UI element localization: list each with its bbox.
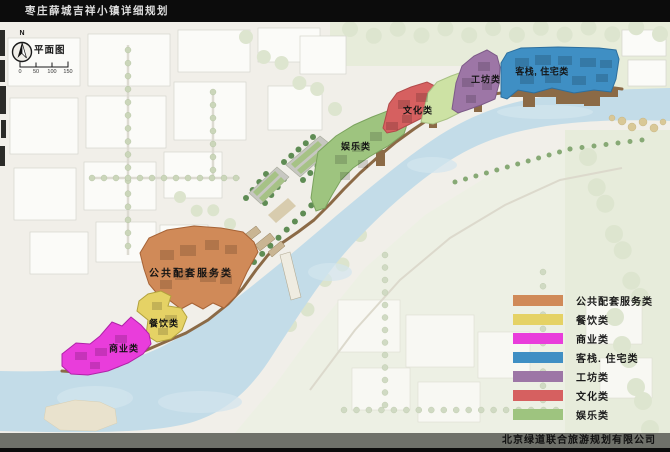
- tree-icon: [354, 407, 360, 413]
- scale-tick-0: 0: [18, 69, 21, 75]
- tree-icon: [382, 377, 388, 383]
- tree-icon: [491, 407, 497, 413]
- scale-tick-150: 150: [63, 69, 72, 75]
- tree-icon: [485, 20, 501, 36]
- tree-icon: [382, 302, 388, 308]
- legend-item: 公共配套服务类: [513, 295, 653, 306]
- tree-icon: [640, 138, 645, 143]
- page-title: 枣庄薛城吉祥小镇详细规划: [25, 0, 169, 22]
- tree-icon: [547, 153, 552, 158]
- legend-label: 工坊类: [576, 369, 609, 384]
- tree-icon: [125, 217, 131, 223]
- scale-tick-100: 100: [47, 69, 56, 75]
- tree-icon: [300, 211, 306, 217]
- tree-icon: [125, 139, 131, 145]
- legend-swatch-workshop: [513, 371, 563, 382]
- tree-icon: [276, 235, 282, 241]
- tree-icon: [441, 407, 447, 413]
- tree-icon: [526, 159, 531, 164]
- tree-icon: [296, 147, 302, 153]
- tree-icon: [382, 277, 388, 283]
- zone-label-culture: 文化类: [403, 104, 433, 117]
- tree-icon: [125, 243, 131, 249]
- tree-icon: [221, 175, 227, 181]
- tree-icon: [125, 204, 131, 210]
- tree-icon: [533, 20, 549, 36]
- tree-icon: [89, 175, 95, 181]
- legend-label: 娱乐类: [576, 407, 609, 422]
- legend: 公共配套服务类 餐饮类 商业类 客栈. 住宅类 工坊类 文化类 娱乐类: [513, 295, 653, 428]
- tree-icon: [125, 86, 131, 92]
- title-bar: 枣庄薛城吉祥小镇详细规划: [0, 0, 670, 22]
- tree-icon: [292, 219, 298, 225]
- tree-icon: [414, 28, 430, 44]
- tree-icon: [382, 365, 388, 371]
- tree-icon: [125, 165, 131, 171]
- tree-icon: [281, 159, 287, 165]
- tree-icon: [310, 134, 316, 140]
- legend-item: 娱乐类: [513, 409, 653, 420]
- legend-label: 餐饮类: [576, 312, 609, 327]
- tree-icon: [461, 27, 477, 43]
- tree-icon: [224, 218, 236, 230]
- legend-item: 商业类: [513, 333, 653, 344]
- tree-icon: [210, 89, 216, 95]
- tree-icon: [540, 269, 546, 275]
- tree-icon: [416, 407, 422, 413]
- tree-icon: [509, 27, 525, 43]
- tree-icon: [233, 175, 239, 181]
- tree-icon: [604, 26, 620, 42]
- legend-swatch-commercial: [513, 333, 563, 344]
- tree-icon: [616, 141, 621, 146]
- plan-view-label: 平面图: [34, 42, 66, 56]
- tree-icon: [652, 26, 668, 42]
- tree-icon: [466, 407, 472, 413]
- tree-icon: [382, 265, 388, 271]
- tree-icon: [292, 76, 306, 90]
- tree-icon: [614, 241, 632, 259]
- zone-label-catering: 餐饮类: [149, 317, 179, 330]
- tree-icon: [557, 150, 562, 155]
- tree-icon: [173, 175, 179, 181]
- tree-icon: [288, 153, 294, 159]
- legend-label: 商业类: [576, 331, 609, 346]
- tree-icon: [473, 174, 478, 179]
- tree-icon: [210, 167, 216, 173]
- tree-icon: [391, 407, 397, 413]
- tree-icon: [113, 175, 119, 181]
- tree-icon: [382, 290, 388, 296]
- tree-icon: [210, 141, 216, 147]
- tree-icon: [382, 352, 388, 358]
- tree-icon: [604, 142, 609, 147]
- scale-tick-50: 50: [33, 69, 39, 75]
- tree-icon: [125, 99, 131, 105]
- footer-black-strip: [0, 448, 670, 452]
- legend-swatch-culture: [513, 390, 563, 401]
- tree-icon: [125, 47, 131, 53]
- tree-icon: [382, 340, 388, 346]
- tree-icon: [403, 407, 409, 413]
- tree-icon: [453, 407, 459, 413]
- tree-icon: [149, 175, 155, 181]
- footer-bar: 北京绿道联合旅游规划有限公司: [0, 433, 670, 448]
- tree-icon: [428, 407, 434, 413]
- legend-swatch-public-service: [513, 295, 563, 306]
- tree-icon: [378, 407, 384, 413]
- tree-icon: [382, 252, 388, 258]
- tree-icon: [210, 115, 216, 121]
- tree-icon: [503, 407, 509, 413]
- tree-icon: [592, 144, 597, 149]
- tree-icon: [300, 177, 306, 183]
- tree-icon: [209, 175, 215, 181]
- north-arrow-icon: [13, 43, 32, 62]
- legend-item: 餐饮类: [513, 314, 653, 325]
- tree-icon: [494, 168, 499, 173]
- tree-icon: [628, 139, 633, 144]
- tree-icon: [275, 56, 289, 70]
- tree-icon: [125, 60, 131, 66]
- tree-icon: [342, 21, 358, 37]
- tree-icon: [307, 170, 313, 176]
- tree-icon: [366, 407, 372, 413]
- tree-icon: [328, 102, 342, 116]
- tree-icon: [484, 171, 489, 176]
- tree-icon: [197, 175, 203, 181]
- tree-icon: [125, 125, 131, 131]
- legend-swatch-catering: [513, 314, 563, 325]
- tree-icon: [210, 154, 216, 160]
- tree-icon: [505, 165, 510, 170]
- planning-map-page: 枣庄薛城吉祥小镇详细规划 N 平面图 0 50 100 150 公共配套服务类 …: [0, 0, 670, 452]
- tree-icon: [453, 180, 458, 185]
- tree-icon: [588, 178, 606, 196]
- legend-label: 公共配套服务类: [576, 293, 653, 308]
- tree-icon: [536, 156, 541, 161]
- zone-label-entertainment: 娱乐类: [341, 140, 371, 153]
- company-name: 北京绿道联合旅游规划有限公司: [502, 433, 656, 448]
- legend-item: 文化类: [513, 390, 653, 401]
- tree-icon: [210, 128, 216, 134]
- tree-icon: [207, 204, 219, 216]
- legend-item: 客栈. 住宅类: [513, 352, 653, 363]
- legend-swatch-inn-residential: [513, 352, 563, 363]
- tree-icon: [622, 272, 640, 290]
- tree-icon: [125, 175, 131, 181]
- tree-icon: [257, 50, 271, 64]
- tree-icon: [568, 147, 573, 152]
- tree-icon: [239, 30, 253, 44]
- tree-icon: [478, 407, 484, 413]
- tree-icon: [382, 402, 388, 408]
- tree-icon: [341, 407, 347, 413]
- tree-icon: [382, 327, 388, 333]
- tree-icon: [605, 225, 623, 243]
- tree-icon: [101, 175, 107, 181]
- tree-icon: [125, 191, 131, 197]
- tree-icon: [191, 205, 203, 217]
- tree-icon: [185, 175, 191, 181]
- zone-label-inn-residential: 客栈, 住宅类: [515, 65, 569, 78]
- tree-icon: [210, 102, 216, 108]
- legend-label: 文化类: [576, 388, 609, 403]
- compass-north-label: N: [19, 30, 24, 37]
- tree-icon: [125, 230, 131, 236]
- tree-icon: [243, 195, 249, 201]
- tree-icon: [579, 148, 597, 166]
- tree-icon: [284, 227, 290, 233]
- legend-item: 工坊类: [513, 371, 653, 382]
- tree-icon: [125, 152, 131, 158]
- tree-icon: [382, 315, 388, 321]
- tree-icon: [463, 177, 468, 182]
- tree-icon: [310, 82, 324, 96]
- tree-icon: [540, 283, 546, 289]
- tree-icon: [125, 73, 131, 79]
- tree-icon: [366, 28, 382, 44]
- sand-beach: [44, 400, 117, 431]
- tree-icon: [557, 27, 573, 43]
- tree-icon: [259, 251, 265, 257]
- zone-label-workshop: 工坊类: [471, 73, 501, 86]
- zone-label-public-service: 公共配套服务类: [149, 265, 233, 280]
- zone-label-commercial: 商业类: [109, 342, 139, 355]
- tree-icon: [137, 175, 143, 181]
- legend-swatch-entertainment: [513, 409, 563, 420]
- tree-icon: [174, 191, 186, 203]
- legend-label: 客栈. 住宅类: [576, 350, 639, 365]
- tree-icon: [596, 195, 614, 213]
- tree-icon: [303, 140, 309, 146]
- tree-icon: [161, 175, 167, 181]
- tree-icon: [125, 112, 131, 118]
- tree-icon: [515, 162, 520, 167]
- tree-icon: [382, 390, 388, 396]
- tree-icon: [390, 21, 406, 37]
- tree-icon: [437, 20, 453, 36]
